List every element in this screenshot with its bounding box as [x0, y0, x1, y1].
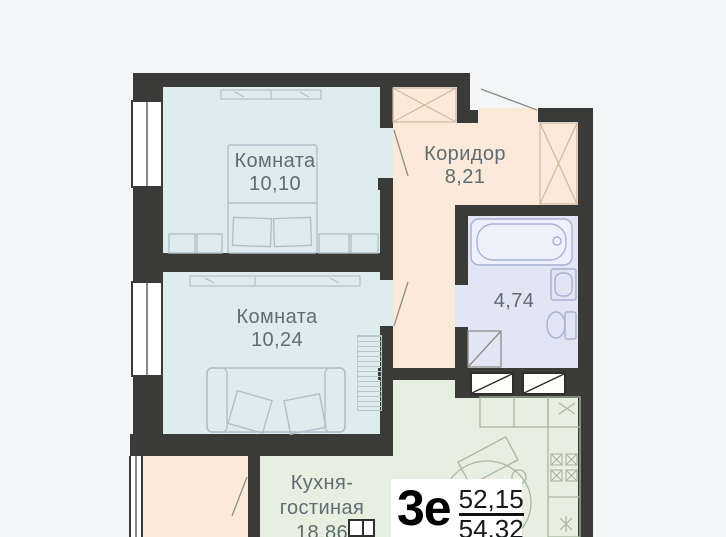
wall-left-b — [133, 188, 163, 281]
kitchen-name-line1: Кухня- — [280, 471, 365, 496]
wall-corridor-left-c — [380, 272, 393, 280]
corridor-floor-lower — [393, 205, 455, 368]
wall-entrance-stub — [470, 110, 478, 123]
floor-plan: Комната 10,10 Комната 10,24 Коридор 8,21… — [0, 0, 726, 537]
bath-door-opening — [455, 285, 468, 327]
living-area: 52,15 — [459, 486, 524, 516]
room2-floor — [163, 272, 380, 434]
bathroom-label: 4,74 — [494, 290, 535, 313]
corridor-label: Коридор 8,21 — [424, 143, 506, 189]
wall-bath-left-a — [455, 205, 468, 285]
total-area: 54,32 — [459, 516, 524, 537]
room2-area: 10,24 — [236, 329, 317, 352]
room2-name: Комната — [236, 306, 317, 329]
room2-door-opening — [378, 280, 393, 326]
wall-bath-top — [455, 205, 593, 216]
room1-door-opening — [378, 128, 393, 178]
vent-shaft-symbol-1 — [470, 372, 514, 395]
window-symbol-hallway — [129, 456, 143, 537]
room1-name: Комната — [234, 150, 315, 173]
kitchen-name-line2: гостиная — [280, 496, 365, 521]
entrance-opening — [478, 108, 538, 123]
wall-closet-right — [457, 87, 470, 123]
kitchen-label: Кухня- гостиная 18,86 — [280, 471, 365, 537]
wall-top — [133, 73, 470, 87]
wall-corridor-left-b — [380, 190, 393, 253]
wall-corridor-kitchen — [378, 368, 470, 380]
corridor-floor-closet — [393, 87, 457, 123]
wall-room2-bottom — [130, 434, 393, 456]
wall-left-a — [133, 73, 163, 102]
plan-type-badge: 3е 52,15 54,32 — [391, 479, 522, 537]
shelving-symbol — [357, 335, 382, 411]
room2-label: Комната 10,24 — [236, 306, 317, 352]
bathroom-area: 4,74 — [494, 290, 535, 313]
room1-label: Комната 10,10 — [234, 150, 315, 196]
corridor-area: 8,21 — [424, 166, 506, 189]
window-symbol-room1 — [131, 100, 163, 188]
kitchen-area: 18,86 — [280, 521, 365, 537]
window-symbol-room2 — [131, 281, 163, 377]
vent-shaft-symbol-2 — [522, 372, 566, 395]
hallway-floor-bottom — [143, 456, 248, 537]
wall-right — [578, 108, 593, 537]
wall-corridor-left-stub — [378, 178, 393, 190]
room1-area: 10,10 — [234, 173, 315, 196]
plan-type: 3е — [397, 482, 451, 534]
corridor-name: Коридор — [424, 143, 506, 166]
wall-between-rooms — [163, 253, 393, 272]
wall-corridor-left-a — [380, 87, 393, 128]
wall-hallway-kitchen — [248, 452, 260, 537]
